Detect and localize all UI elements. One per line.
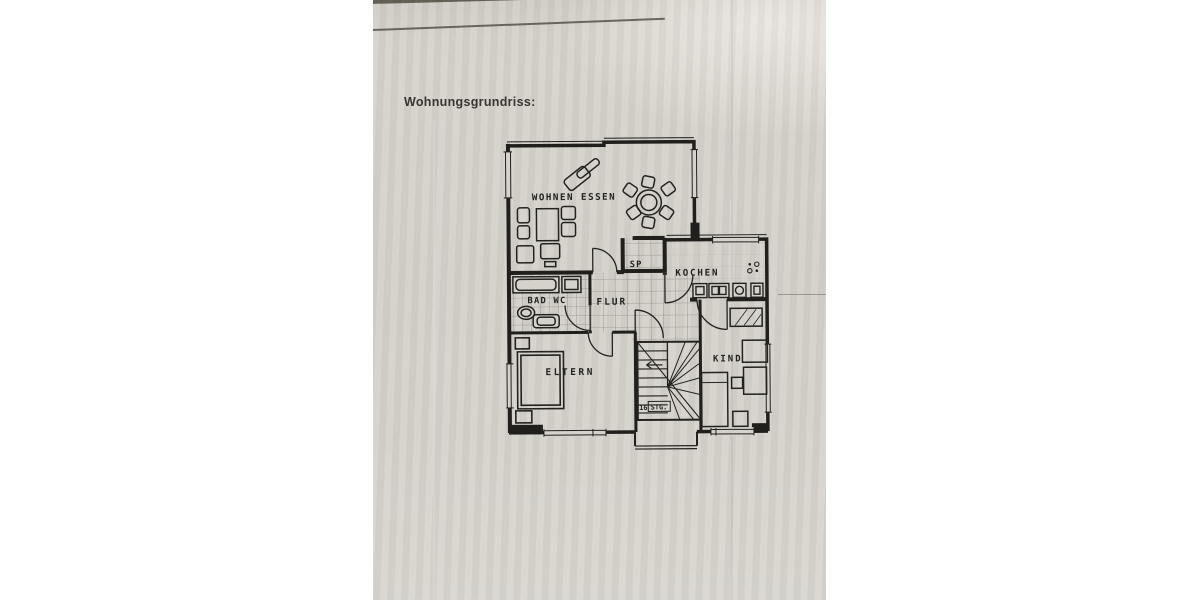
window-parents-left xyxy=(505,364,513,408)
armchair xyxy=(561,222,575,236)
dining-chair xyxy=(626,205,642,221)
door-living-hall xyxy=(593,248,617,272)
paper-crease-vertical xyxy=(433,120,435,600)
window-parents-bottom xyxy=(544,428,606,436)
parents-furniture xyxy=(515,338,564,423)
stairs-label: 16 STG. xyxy=(639,401,670,412)
wall-jog-column xyxy=(690,223,699,241)
armchair xyxy=(561,206,575,219)
bathtub-inner xyxy=(516,279,556,290)
room-label-kochen: KOCHEN xyxy=(675,267,719,278)
nightstand xyxy=(515,338,529,349)
child-furniture xyxy=(701,308,768,426)
counter-unit-inner xyxy=(754,286,760,294)
coffee-table xyxy=(536,209,558,241)
nightstand xyxy=(516,411,532,423)
screenshot-stage: Wohnungsgrundriss: xyxy=(0,0,1200,600)
dining-chair xyxy=(642,216,656,229)
armchair xyxy=(518,226,530,239)
tv-board-base xyxy=(545,262,556,267)
floorplan-drawing: WOHNEN ESSEN SP KOCHEN BAD WC FLUR ELTER… xyxy=(494,134,791,458)
room-label-wohnen-essen: WOHNEN ESSEN xyxy=(532,192,616,204)
room-label-flur: FLUR xyxy=(597,297,628,308)
armchair xyxy=(517,208,529,223)
chest xyxy=(733,411,748,426)
photographed-paper: Wohnungsgrundriss: xyxy=(373,0,826,600)
kitchen-counter xyxy=(693,283,763,297)
corner-block-left xyxy=(509,425,543,433)
sideboard-angled xyxy=(563,165,591,191)
winder-steps xyxy=(667,342,701,420)
armchair xyxy=(517,246,534,263)
window-living-right xyxy=(690,150,698,198)
stairs-count: 16 xyxy=(639,404,647,412)
dining-set xyxy=(622,175,677,229)
room-label-kind: KIND xyxy=(713,354,743,364)
stairs-unit: STG. xyxy=(651,403,667,411)
double-bed-inner xyxy=(521,355,560,405)
room-label-eltern: ELTERN xyxy=(545,367,595,378)
child-bed xyxy=(702,372,728,426)
wardrobe-hatched xyxy=(730,308,762,326)
sink-bowl xyxy=(712,286,719,294)
page-title: Wohnungsgrundriss: xyxy=(404,95,536,109)
desk xyxy=(744,367,767,394)
stairwell-protrusion xyxy=(635,432,697,449)
dining-chair xyxy=(622,182,638,198)
living-furniture xyxy=(516,158,601,267)
door-parents xyxy=(588,332,612,356)
toilet-bowl xyxy=(521,309,531,317)
counter-unit-inner xyxy=(735,286,743,294)
window-kitchen-top xyxy=(713,235,759,243)
room-label-sp: SP xyxy=(630,260,643,270)
landing-tiles2 xyxy=(632,332,665,342)
room-label-bad-wc: BAD WC xyxy=(527,296,566,306)
dining-table-inner xyxy=(641,194,657,210)
counter-unit-inner xyxy=(696,287,704,295)
dining-chair xyxy=(660,181,676,197)
double-bed xyxy=(517,352,563,409)
sink-basin xyxy=(537,317,555,325)
window-living-left xyxy=(503,152,512,198)
tv-board xyxy=(541,244,560,259)
desk-chair xyxy=(732,377,743,388)
window-child-bottom xyxy=(711,427,754,435)
sink-bowl xyxy=(719,286,726,294)
dining-chair xyxy=(641,175,655,188)
washing-machine-inner xyxy=(565,279,578,289)
